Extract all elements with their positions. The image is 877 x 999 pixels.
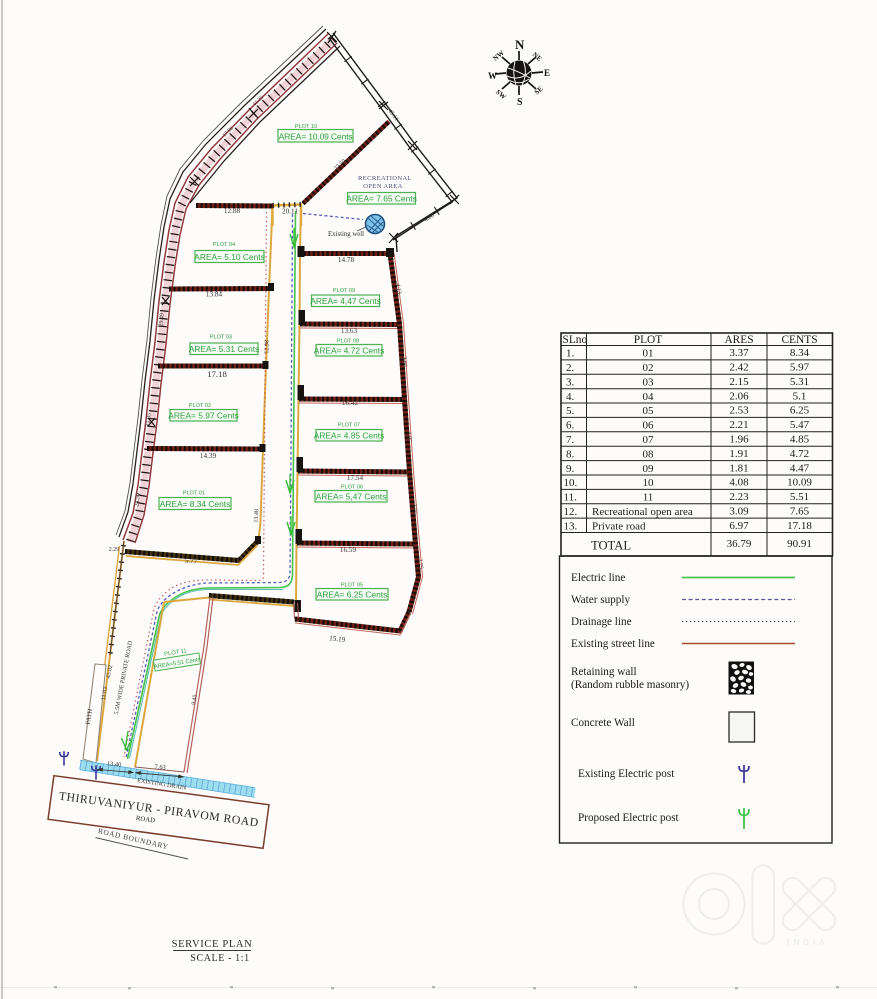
svg-text:12.: 12. <box>564 506 578 518</box>
svg-text:4.72: 4.72 <box>790 448 809 460</box>
svg-text:5.47: 5.47 <box>790 419 810 431</box>
svg-text:13.48: 13.48 <box>254 509 261 523</box>
svg-text:16.59: 16.59 <box>340 546 357 554</box>
svg-text:AREA= 5.10 Cents: AREA= 5.10 Cents <box>194 252 265 262</box>
svg-text:01: 01 <box>643 348 654 360</box>
svg-text:SLno: SLno <box>563 334 588 346</box>
svg-text:NE: NE <box>531 51 544 64</box>
svg-text:14.78: 14.78 <box>338 256 355 264</box>
svg-text:45.02: 45.02 <box>106 665 114 679</box>
svg-text:11.: 11. <box>564 492 578 504</box>
svg-text:13.: 13. <box>564 520 578 532</box>
svg-text:3.55: 3.55 <box>411 503 418 514</box>
svg-text:3.37: 3.37 <box>729 347 749 359</box>
svg-text:2.29: 2.29 <box>109 547 120 553</box>
svg-text:1.96: 1.96 <box>729 434 749 446</box>
svg-text:PLOT 07: PLOT 07 <box>338 423 360 429</box>
svg-text:AREA= 10.09 Cents: AREA= 10.09 Cents <box>279 132 353 142</box>
svg-text:Retaining wall: Retaining wall <box>571 666 637 678</box>
svg-text:PLOT 04: PLOT 04 <box>213 242 235 248</box>
svg-text:OPEN AREA: OPEN AREA <box>363 183 403 190</box>
svg-text:Existing Electric post: Existing Electric post <box>578 768 675 780</box>
svg-text:Electric line: Electric line <box>571 572 625 584</box>
svg-text:SE: SE <box>533 85 545 97</box>
svg-text:2.: 2. <box>566 362 575 374</box>
svg-text:PLOT 06: PLOT 06 <box>341 485 363 491</box>
svg-text:Water supply: Water supply <box>571 594 630 606</box>
svg-text:TOTAL: TOTAL <box>591 539 631 553</box>
svg-text:9.: 9. <box>566 463 575 475</box>
svg-text:90.91: 90.91 <box>787 538 812 550</box>
svg-text:7.63: 7.63 <box>154 764 166 772</box>
svg-text:4.: 4. <box>566 391 575 403</box>
svg-text:7.65: 7.65 <box>790 505 810 517</box>
svg-text:3.65: 3.65 <box>401 356 408 367</box>
svg-text:NW: NW <box>491 49 505 63</box>
svg-text:09: 09 <box>643 463 655 475</box>
svg-text:RECREATIONAL: RECREATIONAL <box>358 175 412 182</box>
svg-text:2.06: 2.06 <box>729 390 749 402</box>
svg-text:5.1: 5.1 <box>793 390 807 402</box>
svg-text:CENTS: CENTS <box>781 334 817 346</box>
svg-text:11.03: 11.03 <box>101 687 109 701</box>
svg-text:PLOT 01: PLOT 01 <box>183 491 205 497</box>
svg-text:SERVICE PLAN: SERVICE PLAN <box>172 939 253 950</box>
svg-text:5.77: 5.77 <box>185 557 199 566</box>
svg-text:03: 03 <box>643 377 655 389</box>
svg-text:17.18: 17.18 <box>787 520 812 532</box>
svg-text:2.23: 2.23 <box>729 491 749 503</box>
svg-text:S: S <box>517 97 523 108</box>
svg-text:INDIA: INDIA <box>787 938 829 947</box>
svg-text:16.42: 16.42 <box>342 399 359 407</box>
svg-text:4.85: 4.85 <box>790 434 810 446</box>
svg-text:5.31: 5.31 <box>790 376 809 388</box>
svg-text:AREA= 5.97 Cents: AREA= 5.97 Cents <box>168 411 239 421</box>
svg-text:14.39: 14.39 <box>200 452 217 460</box>
svg-text:4.08: 4.08 <box>729 477 749 489</box>
svg-text:3.95: 3.95 <box>405 431 412 442</box>
svg-text:W: W <box>488 71 497 81</box>
svg-text:10.: 10. <box>564 477 578 489</box>
svg-text:5.: 5. <box>566 405 575 417</box>
svg-text:2.42: 2.42 <box>729 362 748 374</box>
svg-text:3.09: 3.09 <box>729 505 749 517</box>
svg-text:11.5: 11.5 <box>243 595 256 604</box>
svg-text:05: 05 <box>643 405 655 417</box>
svg-text:36.79: 36.79 <box>727 538 752 550</box>
svg-text:Recreational open area: Recreational open area <box>592 506 693 518</box>
svg-text:5.51: 5.51 <box>790 491 809 503</box>
svg-text:ARES: ARES <box>724 334 753 346</box>
svg-text:8.34: 8.34 <box>790 347 810 359</box>
svg-text:4.47: 4.47 <box>790 462 810 474</box>
svg-text:07: 07 <box>643 434 655 446</box>
svg-text:AREA= 6.25 Cents: AREA= 6.25 Cents <box>317 590 388 600</box>
svg-text:SW: SW <box>494 88 507 101</box>
svg-text:13.40: 13.40 <box>107 760 122 768</box>
svg-text:2.75: 2.75 <box>416 558 423 569</box>
svg-text:AREA= 4.72 Cents: AREA= 4.72 Cents <box>314 346 385 356</box>
svg-text:Proposed Electric post: Proposed Electric post <box>578 812 680 824</box>
svg-text:06: 06 <box>643 420 655 432</box>
svg-text:8.: 8. <box>566 448 575 460</box>
svg-text:12.88: 12.88 <box>224 207 241 215</box>
svg-text:13.84: 13.84 <box>206 291 223 299</box>
svg-text:17.18: 17.18 <box>207 369 227 379</box>
svg-text:Existing well: Existing well <box>328 231 364 238</box>
svg-text:AREA= 7.65 Cents: AREA= 7.65 Cents <box>346 194 417 204</box>
svg-text:1.91: 1.91 <box>729 448 748 460</box>
svg-text:PLOT: PLOT <box>634 334 663 346</box>
svg-text:AREA= 5,47 Cents: AREA= 5,47 Cents <box>316 492 387 502</box>
svg-text:15.19: 15.19 <box>329 634 346 644</box>
svg-text:6.25: 6.25 <box>790 405 810 417</box>
svg-text:SCALE - 1:1: SCALE - 1:1 <box>190 953 249 964</box>
svg-text:PLOT 03: PLOT 03 <box>210 335 232 341</box>
svg-text:2.53: 2.53 <box>729 405 749 417</box>
svg-text:AREA= 8.34 Cents: AREA= 8.34 Cents <box>160 499 231 509</box>
svg-text:Private road: Private road <box>592 520 646 532</box>
svg-text:E: E <box>544 68 550 78</box>
svg-text:02: 02 <box>643 362 654 374</box>
svg-text:PLOT 09: PLOT 09 <box>333 288 355 294</box>
svg-text:1.: 1. <box>566 348 575 360</box>
svg-text:04: 04 <box>643 391 655 403</box>
svg-text:(Random rubble masonry): (Random rubble masonry) <box>571 679 689 691</box>
svg-text:10.09: 10.09 <box>787 477 812 489</box>
svg-text:PLOT 08: PLOT 08 <box>337 339 359 345</box>
svg-text:5.5M WIDE PRIVATE ROAD: 5.5M WIDE PRIVATE ROAD <box>114 640 134 715</box>
svg-text:12.98: 12.98 <box>264 340 270 354</box>
svg-text:N: N <box>515 37 525 52</box>
svg-text:5.97: 5.97 <box>790 362 810 374</box>
svg-text:PLOT 05: PLOT 05 <box>341 583 363 589</box>
svg-text:08: 08 <box>643 448 655 460</box>
svg-text:AREA= 5.31 Cents: AREA= 5.31 Cents <box>189 344 260 354</box>
svg-text:11: 11 <box>643 492 654 504</box>
svg-text:AREA= 4.85 Cents: AREA= 4.85 Cents <box>314 431 385 441</box>
svg-text:10: 10 <box>643 477 655 489</box>
svg-text:6.: 6. <box>566 420 575 432</box>
svg-text:Existing street line: Existing street line <box>571 638 655 650</box>
svg-text:13.63: 13.63 <box>341 327 358 335</box>
svg-text:Drainage line: Drainage line <box>571 616 632 628</box>
svg-text:Concrete Wall: Concrete Wall <box>571 717 635 729</box>
svg-text:17.54: 17.54 <box>347 474 364 482</box>
svg-text:6.97: 6.97 <box>729 520 749 532</box>
svg-text:3.: 3. <box>566 377 575 389</box>
svg-text:2.21: 2.21 <box>729 419 748 431</box>
svg-text:1.81: 1.81 <box>729 462 748 474</box>
svg-text:7.: 7. <box>566 434 575 446</box>
svg-text:PLOT 02: PLOT 02 <box>189 403 211 409</box>
svg-text:AREA= 4,47 Cents: AREA= 4,47 Cents <box>310 296 381 306</box>
svg-text:2.15: 2.15 <box>729 376 749 388</box>
svg-text:20.11: 20.11 <box>282 208 298 216</box>
